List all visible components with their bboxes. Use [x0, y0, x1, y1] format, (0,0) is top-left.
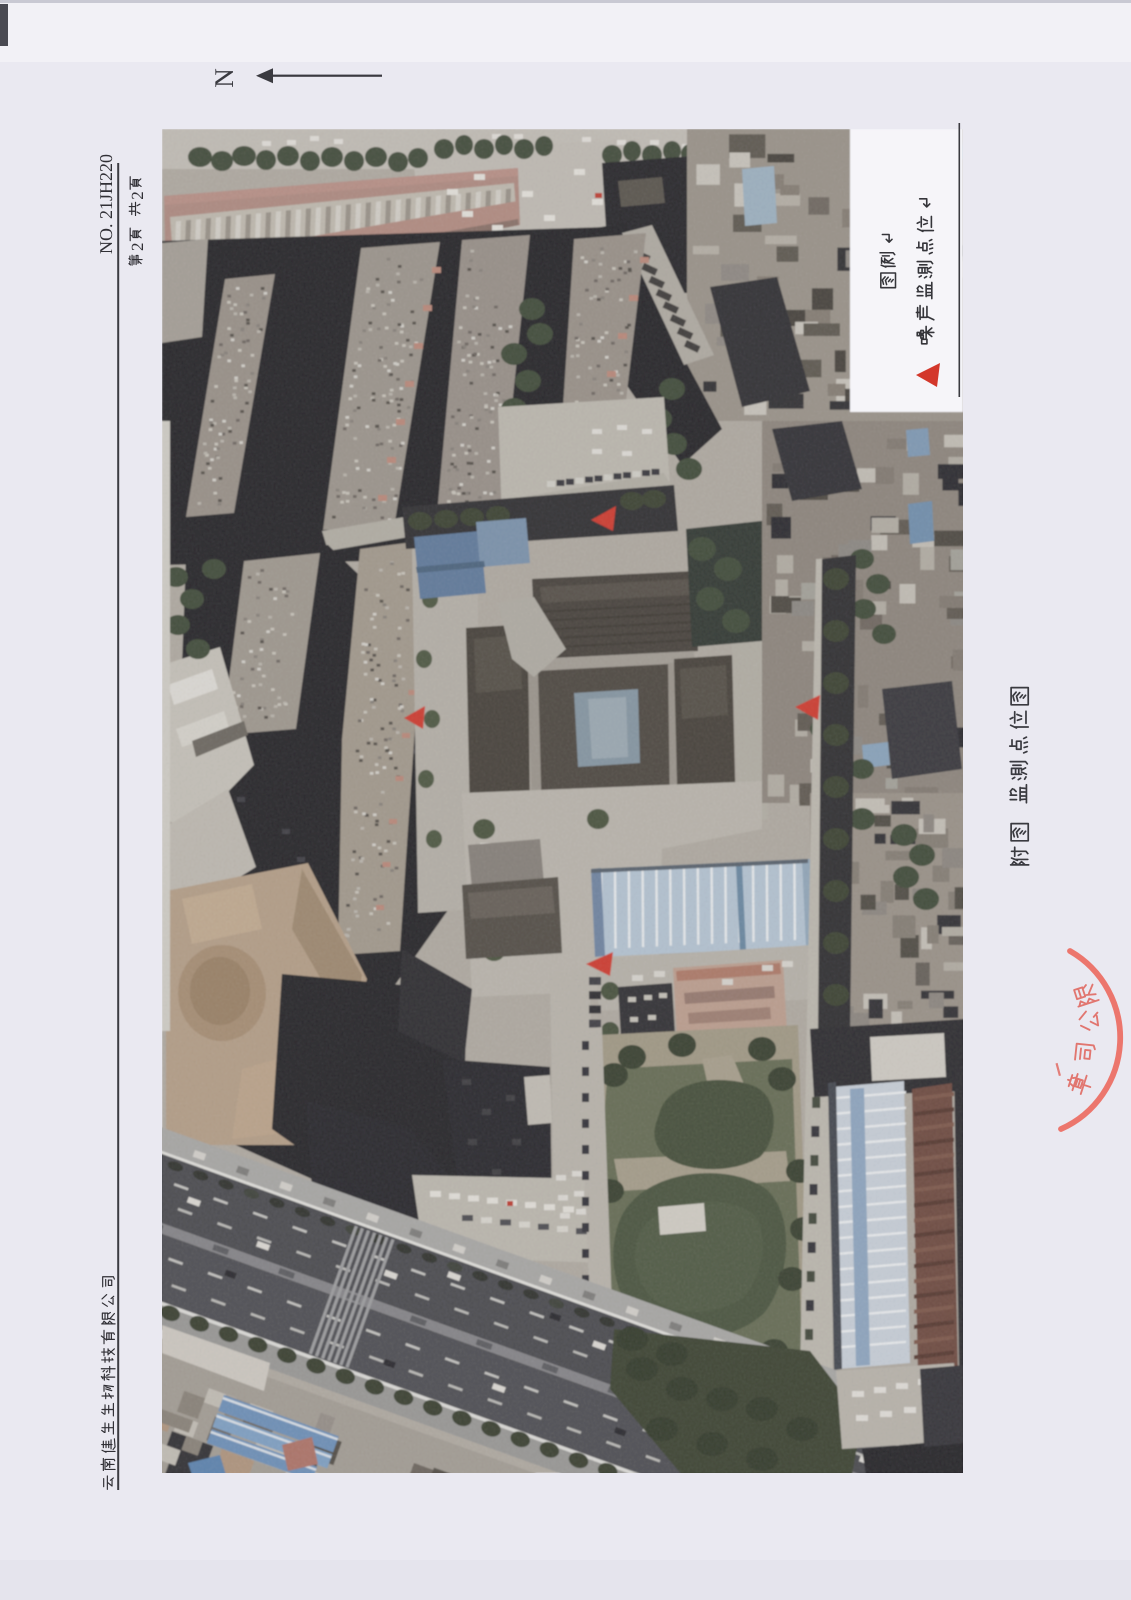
svg-text:2: 2	[128, 191, 147, 200]
svg-text:2: 2	[128, 243, 147, 252]
svg-text:N: N	[209, 68, 239, 88]
svg-text:NO. 21JH220: NO. 21JH220	[96, 154, 116, 254]
